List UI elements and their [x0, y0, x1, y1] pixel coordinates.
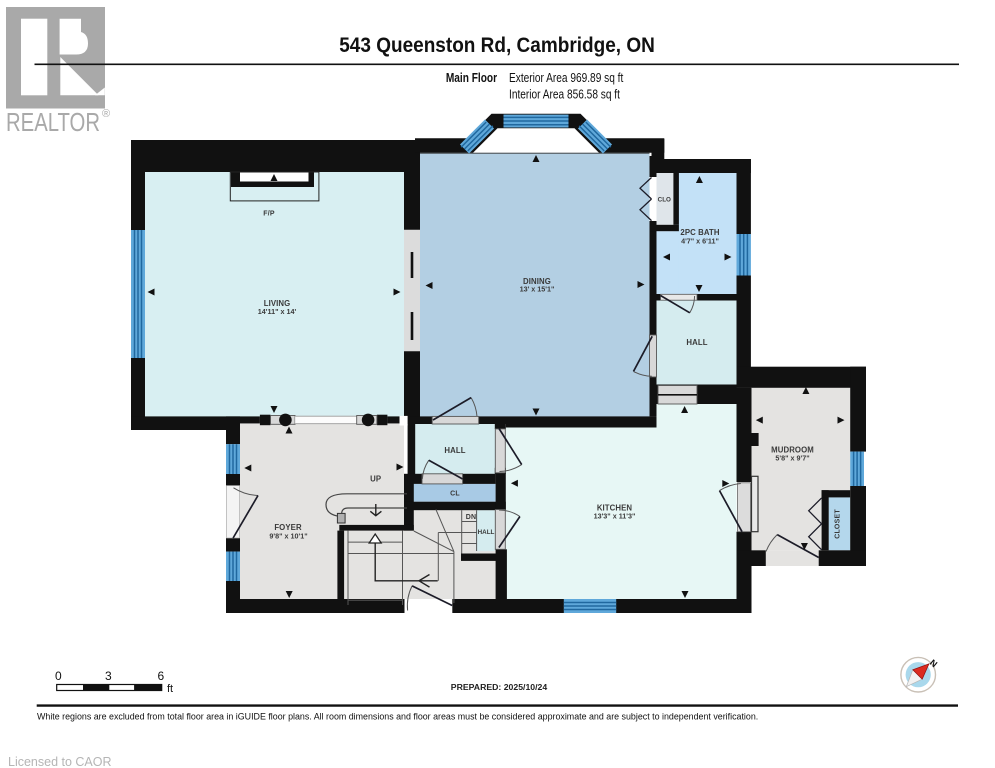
- svg-text:ft: ft: [167, 683, 173, 695]
- svg-text:HALL: HALL: [686, 338, 707, 347]
- svg-text:CLOSET: CLOSET: [835, 509, 842, 539]
- svg-text:HALL: HALL: [478, 529, 495, 536]
- svg-text:Interior Area 856.58 sq ft: Interior Area 856.58 sq ft: [509, 87, 621, 101]
- svg-text:9'8" x 10'1": 9'8" x 10'1": [269, 531, 307, 540]
- svg-text:Exterior Area 969.89 sq ft: Exterior Area 969.89 sq ft: [509, 71, 624, 85]
- svg-text:®: ®: [102, 108, 110, 120]
- svg-text:UP: UP: [370, 475, 381, 484]
- svg-text:4'7" x 6'11": 4'7" x 6'11": [681, 237, 719, 246]
- svg-text:White regions are excluded fro: White regions are excluded from total fl…: [37, 712, 758, 722]
- svg-text:Licensed to CAOR: Licensed to CAOR: [8, 755, 112, 768]
- svg-text:F/P: F/P: [263, 211, 275, 218]
- svg-text:5'8" x 9'7": 5'8" x 9'7": [775, 453, 809, 462]
- svg-text:13'3" x 11'3": 13'3" x 11'3": [594, 512, 636, 521]
- svg-text:CLO: CLO: [658, 197, 671, 204]
- svg-text:6: 6: [157, 669, 164, 683]
- svg-text:PREPARED: 2025/10/24: PREPARED: 2025/10/24: [451, 682, 548, 692]
- svg-text:3: 3: [105, 669, 112, 683]
- svg-text:DN: DN: [466, 514, 477, 521]
- svg-text:HALL: HALL: [444, 446, 465, 455]
- svg-text:14'11" x 14': 14'11" x 14': [258, 307, 297, 316]
- svg-text:0: 0: [55, 669, 62, 683]
- svg-text:Main Floor: Main Floor: [446, 71, 498, 85]
- svg-text:REALTOR: REALTOR: [6, 107, 100, 137]
- svg-text:CL: CL: [450, 491, 460, 498]
- svg-text:543 Queenston Rd, Cambridge, O: 543 Queenston Rd, Cambridge, ON: [339, 34, 655, 57]
- svg-text:13' x 15'1": 13' x 15'1": [520, 285, 555, 294]
